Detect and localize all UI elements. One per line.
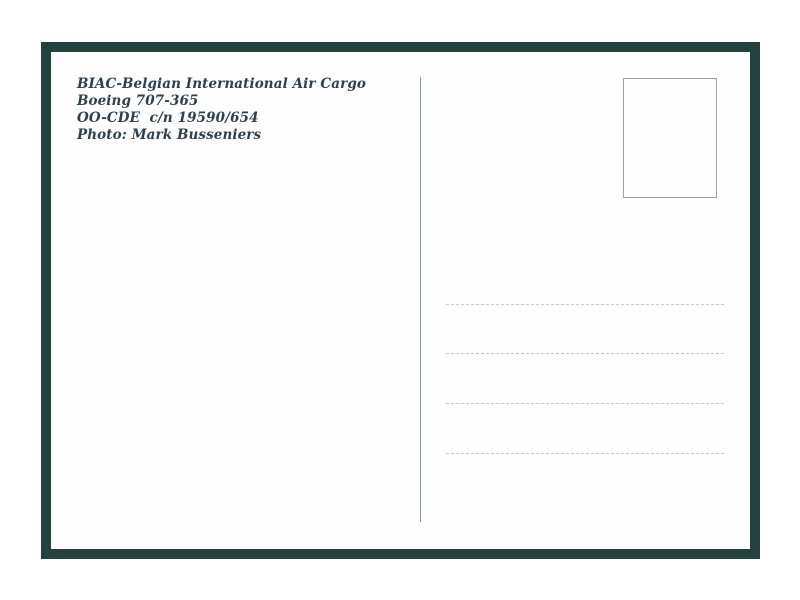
address-line: [446, 304, 724, 305]
address-line: [446, 403, 724, 404]
caption-photo-credit: Photo: Mark Busseniers: [77, 127, 366, 144]
address-line: [446, 353, 724, 354]
center-divider-line: [420, 77, 421, 522]
postcard-border-frame: BIAC-Belgian International Air Cargo Boe…: [41, 42, 760, 559]
photo-caption: BIAC-Belgian International Air Cargo Boe…: [77, 76, 366, 144]
caption-registration: OO-CDE c/n 19590/654: [77, 110, 366, 127]
caption-airline: BIAC-Belgian International Air Cargo: [77, 76, 366, 93]
caption-aircraft-type: Boeing 707-365: [77, 93, 366, 110]
address-line: [446, 453, 724, 454]
postcard-back: BIAC-Belgian International Air Cargo Boe…: [51, 52, 750, 549]
scan-background: BIAC-Belgian International Air Cargo Boe…: [0, 0, 800, 600]
address-lines-group: [446, 52, 724, 549]
